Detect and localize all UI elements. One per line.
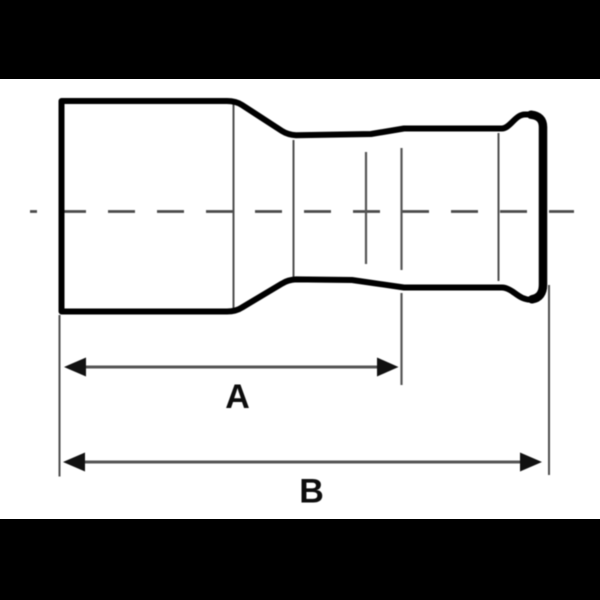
svg-text:B: B	[299, 473, 324, 511]
svg-text:A: A	[225, 378, 250, 416]
